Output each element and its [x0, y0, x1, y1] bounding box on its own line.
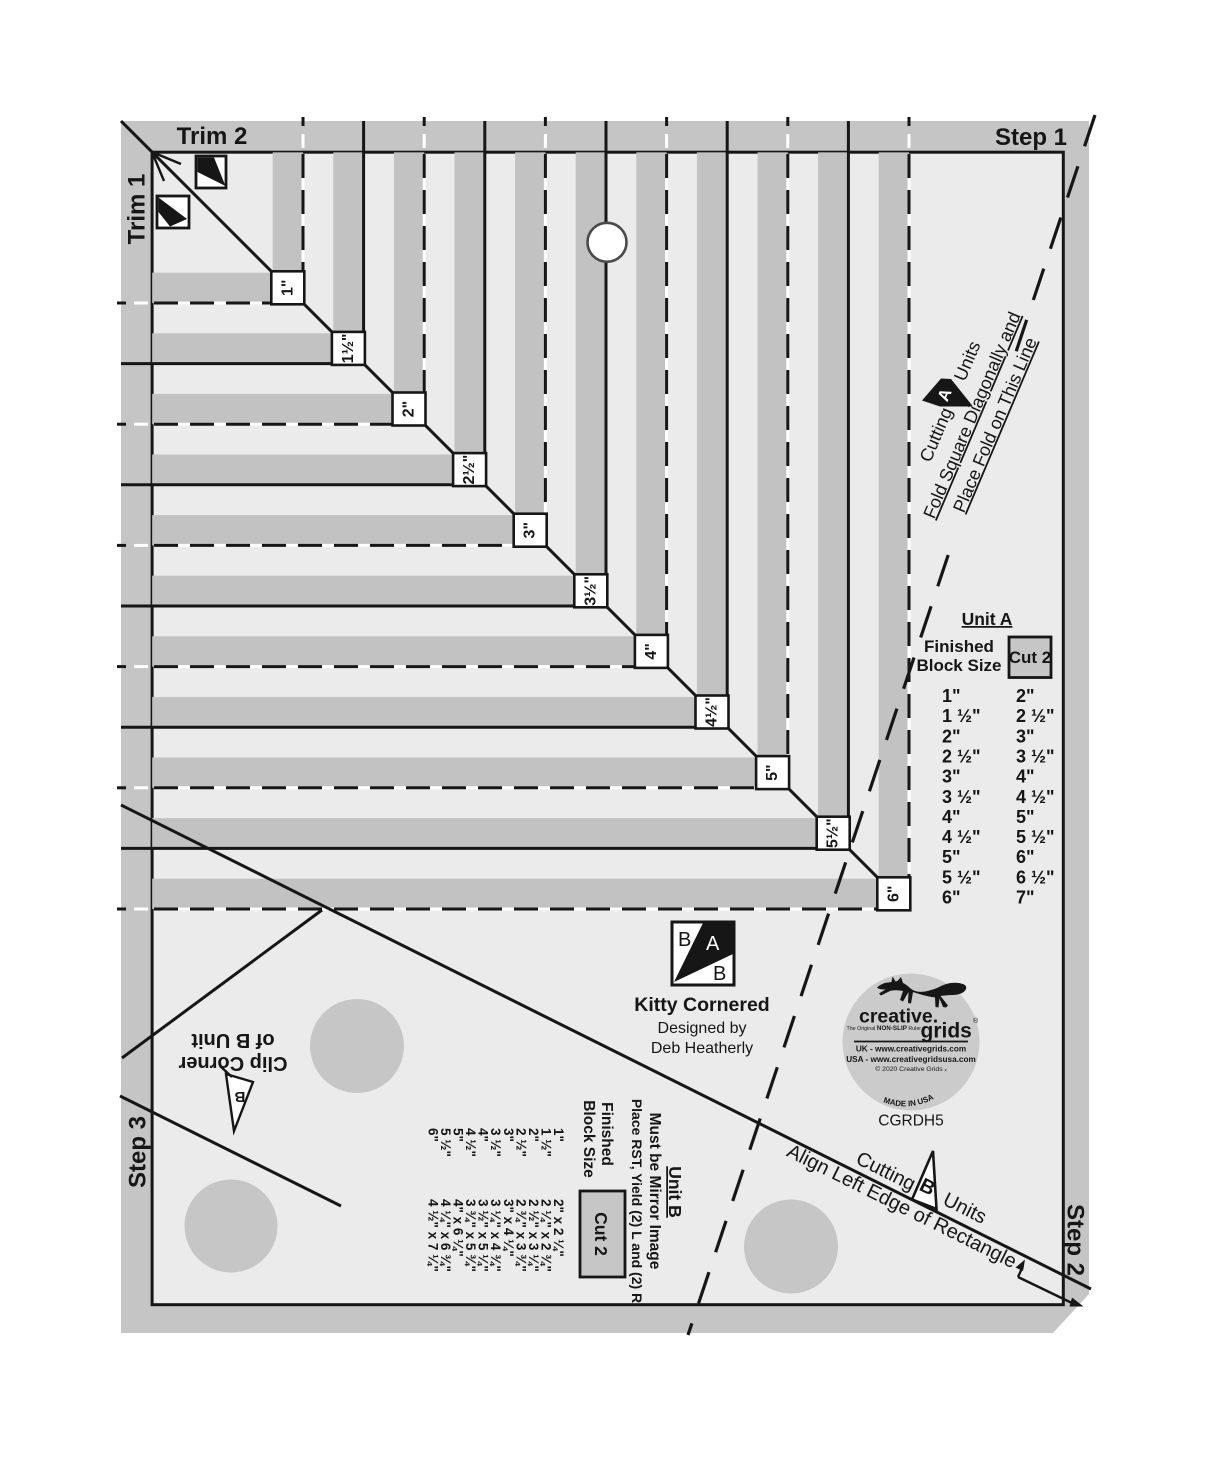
svg-text:5": 5"	[1016, 807, 1035, 827]
svg-text:5½": 5½"	[825, 818, 842, 848]
svg-text:®: ®	[973, 1017, 979, 1025]
svg-text:2": 2"	[942, 726, 961, 746]
svg-text:2 ½": 2 ½"	[1016, 706, 1055, 726]
svg-text:Finished: Finished	[598, 1102, 615, 1166]
svg-text:6": 6"	[426, 1128, 441, 1142]
svg-text:Kitty Cornered: Kitty Cornered	[634, 994, 769, 1016]
svg-text:Must be Mirror Image: Must be Mirror Image	[646, 1113, 663, 1270]
svg-text:2": 2"	[401, 401, 418, 417]
svg-text:Step 3: Step 3	[125, 1116, 152, 1188]
svg-text:4 ½" x 7 ¼": 4 ½" x 7 ¼"	[426, 1199, 441, 1272]
svg-text:6 ½": 6 ½"	[1016, 867, 1055, 887]
svg-text:Trim 1: Trim 1	[124, 174, 151, 245]
svg-text:2": 2"	[1016, 686, 1035, 706]
svg-text:of B Unit: of B Unit	[191, 1029, 275, 1051]
svg-text:2 ½": 2 ½"	[942, 747, 981, 767]
svg-text:A: A	[706, 933, 720, 955]
svg-text:B: B	[713, 963, 726, 985]
svg-text:Step 2: Step 2	[1062, 1204, 1089, 1276]
svg-text:4": 4"	[942, 807, 961, 827]
svg-text:Cut 2: Cut 2	[591, 1212, 611, 1256]
svg-text:3": 3"	[1016, 726, 1035, 746]
svg-text:B: B	[234, 1088, 245, 1105]
svg-text:4": 4"	[1016, 767, 1035, 787]
svg-text:1½": 1½"	[340, 333, 357, 363]
svg-text:Cut 2: Cut 2	[1009, 648, 1052, 667]
svg-text:Trim 2: Trim 2	[177, 123, 248, 150]
svg-text:Block Size: Block Size	[916, 656, 1001, 675]
svg-text:4 ½": 4 ½"	[942, 827, 981, 847]
svg-text:4": 4"	[643, 643, 660, 659]
svg-text:Deb Heatherly: Deb Heatherly	[651, 1040, 753, 1057]
svg-text:Step 1: Step 1	[995, 124, 1067, 151]
svg-text:5": 5"	[764, 764, 781, 780]
svg-text:3 ½": 3 ½"	[1016, 747, 1055, 767]
svg-text:CGRDH5: CGRDH5	[878, 1113, 943, 1130]
svg-text:6": 6"	[1016, 847, 1035, 867]
svg-text:3": 3"	[942, 767, 961, 787]
svg-text:The Original NON-SLIP Ruler: The Original NON-SLIP Ruler	[847, 1025, 922, 1032]
svg-text:1": 1"	[942, 686, 961, 706]
svg-text:7": 7"	[1016, 888, 1035, 908]
svg-text:5 ½": 5 ½"	[1016, 827, 1055, 847]
svg-text:Unit B: Unit B	[665, 1166, 685, 1218]
svg-text:5 ½": 5 ½"	[942, 867, 981, 887]
svg-text:Finished: Finished	[924, 637, 994, 656]
svg-text:1": 1"	[279, 280, 296, 296]
svg-text:4 ½": 4 ½"	[1016, 787, 1055, 807]
svg-text:Designed by: Designed by	[658, 1020, 747, 1037]
svg-text:B: B	[678, 929, 691, 951]
svg-text:Unit A: Unit A	[962, 609, 1013, 629]
svg-text:6": 6"	[885, 886, 902, 902]
svg-text:3": 3"	[522, 522, 539, 538]
svg-text:2½": 2½"	[461, 455, 478, 485]
svg-text:4½": 4½"	[704, 697, 721, 727]
svg-text:6": 6"	[942, 888, 961, 908]
svg-text:3½": 3½"	[582, 576, 599, 606]
svg-text:© 2020 Creative Grids ₓ: © 2020 Creative Grids ₓ	[875, 1065, 947, 1073]
svg-text:Block Size: Block Size	[580, 1100, 597, 1178]
svg-text:USA - www.creativegridsusa.com: USA - www.creativegridsusa.com	[846, 1055, 976, 1064]
svg-text:1 ½": 1 ½"	[942, 706, 981, 726]
svg-text:3 ½": 3 ½"	[942, 787, 981, 807]
svg-text:Place RST, Yield (2) L and (2): Place RST, Yield (2) L and (2) R	[629, 1099, 645, 1303]
svg-text:Clip Corner: Clip Corner	[178, 1052, 287, 1074]
svg-text:UK - www.creativegrids.com: UK - www.creativegrids.com	[856, 1045, 966, 1054]
svg-text:5": 5"	[942, 847, 961, 867]
svg-text:grids: grids	[921, 1020, 972, 1043]
